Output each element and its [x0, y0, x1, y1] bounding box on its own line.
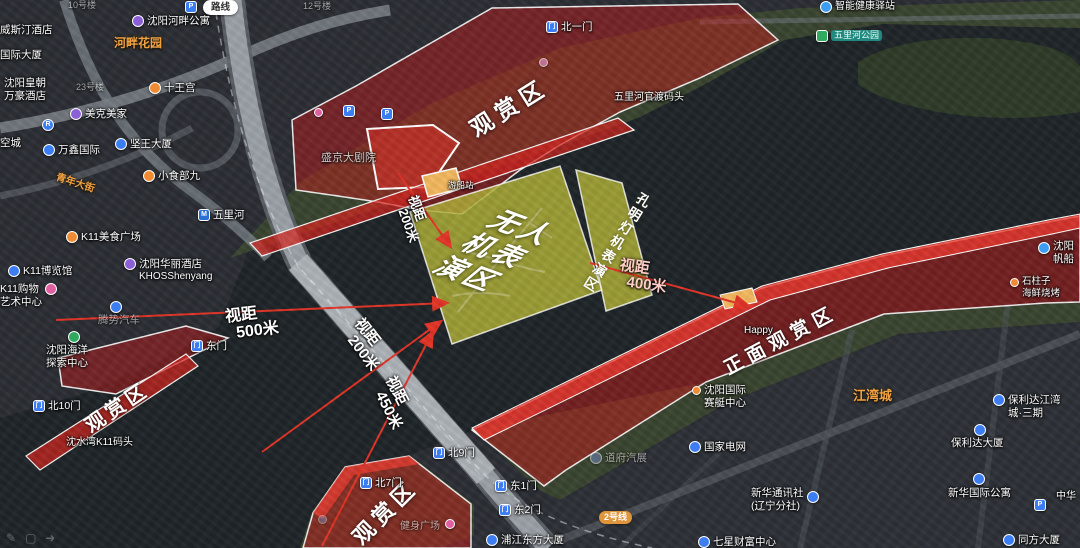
parking-poi[interactable]: P: [185, 1, 197, 13]
poi-north-gate-9[interactable]: 门 北9门: [433, 447, 475, 460]
poi-tengshi-icon[interactable]: [110, 301, 122, 313]
poi-hepan-apartment[interactable]: 沈阳河畔公寓: [132, 15, 210, 28]
park-icon: [816, 30, 828, 42]
poi-dot-icon: [692, 386, 701, 395]
poi-guandu-pier[interactable]: 五里河官渡码头: [614, 92, 684, 104]
aquarium-icon: [68, 331, 80, 343]
poi-dot-icon: [539, 58, 548, 67]
poi-ocean-center[interactable]: 沈阳海洋探索中心: [46, 344, 88, 370]
building-icon: [1003, 534, 1015, 546]
poi-north-gate-1[interactable]: 门 北一门: [546, 21, 593, 34]
gate-icon: 门: [33, 400, 45, 412]
health-icon: [820, 1, 832, 13]
poi-wanxin[interactable]: 万鑫国际: [43, 144, 100, 157]
poi-meikemeijia[interactable]: 美克美家: [70, 108, 127, 121]
poi-zhonghua: 中华: [1056, 491, 1076, 503]
poi-dot: [539, 58, 548, 67]
building-number: 10号楼: [68, 0, 96, 11]
parking-poi[interactable]: P: [381, 108, 393, 120]
poi-xiaoshibu[interactable]: 小食部九: [143, 170, 200, 183]
poi-north-gate-10[interactable]: 门 北10门: [33, 400, 81, 413]
poi-sailing-base[interactable]: 沈阳帆船: [1038, 240, 1074, 266]
poi-baolida-icon[interactable]: [974, 424, 986, 436]
restaurant-dot-icon: [1010, 278, 1019, 287]
building-number: 23号楼: [76, 82, 104, 93]
poi-jianwang-tower[interactable]: 坚王大厦: [115, 138, 172, 151]
poi-baolida-tower[interactable]: 保利达大厦: [951, 437, 1004, 450]
poi-xinhua-news[interactable]: 新华通讯社(辽宁分社): [751, 487, 819, 513]
distance-label-400m: 视距400米: [616, 258, 669, 297]
poi-fitness-square[interactable]: 健身广场: [400, 521, 440, 533]
building-number: 12号楼: [303, 1, 331, 12]
poi-baolida-phase3[interactable]: 保利达江湾城·三期: [993, 394, 1061, 420]
metro-icon: M: [198, 209, 210, 221]
building-icon: [698, 536, 710, 548]
poi-k11-pier[interactable]: 沈水湾K11码头: [66, 437, 133, 449]
poi-east-gate[interactable]: 门 东门: [191, 340, 227, 353]
mall-icon: [45, 283, 57, 295]
poi-dot: [445, 519, 455, 529]
parking-poi[interactable]: P: [1034, 499, 1046, 511]
museum-icon: [8, 265, 20, 277]
parking-poi[interactable]: P: [343, 105, 355, 117]
editor-toolbar[interactable]: ✎ ▢ ➜: [6, 531, 55, 545]
poi-kongcheng[interactable]: 空城: [0, 137, 21, 150]
poi-westin[interactable]: 威斯汀酒店: [0, 24, 53, 37]
metro-line2-badge: 2号线: [599, 511, 632, 524]
poi-k11-expo[interactable]: K11博览馆: [8, 265, 72, 278]
poi-huangchao-hotel[interactable]: 沈阳皇朝万豪酒店: [4, 77, 46, 103]
parking-icon: P: [381, 108, 393, 120]
news-icon: [807, 491, 819, 503]
hotel-icon: [124, 258, 136, 270]
poi-tengshi[interactable]: 腾势汽车: [98, 314, 140, 327]
poi-ocean-icon[interactable]: [68, 331, 80, 343]
gate-icon: 门: [433, 447, 445, 459]
rect-tool-icon[interactable]: ▢: [25, 531, 36, 545]
poi-hepan-garden[interactable]: 河畔花园: [114, 36, 162, 50]
poi-wulihe-park[interactable]: 五里河公园: [816, 30, 882, 42]
poi-seafood-bbq[interactable]: 石柱子海鲜烧烤: [1010, 276, 1060, 300]
gate-icon: 门: [360, 477, 372, 489]
poi-wulihe-metro[interactable]: M 五里河: [198, 209, 245, 222]
poi-xinhua-apt-icon[interactable]: [973, 473, 985, 485]
route-button[interactable]: 路线: [203, 0, 238, 15]
parking-icon: P: [185, 1, 197, 13]
residence-icon: [973, 473, 985, 485]
poi-k11-mall[interactable]: K11购物艺术中心: [0, 283, 57, 309]
car-icon: [110, 301, 122, 313]
poi-dot-icon: [314, 108, 323, 117]
satellite-map[interactable]: 观赏区 观赏区 观赏区 正面观赏区 无人 机表 演区 孔明灯机表演区 视距200…: [0, 0, 1080, 548]
distance-label-500m: 视距500米: [224, 303, 280, 344]
poi-qixing[interactable]: 七星财富中心: [698, 536, 776, 548]
residence-icon: [993, 394, 1005, 406]
poi-tongfang-tower[interactable]: 同方大厦: [1003, 534, 1060, 547]
food-icon: [66, 231, 78, 243]
gate-icon: 门: [499, 504, 511, 516]
gate-icon: 门: [495, 480, 507, 492]
poi-east-gate-1[interactable]: 门 东1门: [495, 480, 537, 493]
gate-icon: 门: [546, 21, 558, 33]
arrow-tool-icon[interactable]: ➜: [45, 531, 55, 545]
shop-icon: [70, 108, 82, 120]
poi-rowing-center[interactable]: 沈阳国际赛艇中心: [692, 384, 746, 410]
poi-dot: [314, 108, 323, 117]
poi-k11-food[interactable]: K11美食广场: [66, 231, 141, 244]
r-icon: R: [42, 119, 54, 131]
gate-icon: 门: [191, 340, 203, 352]
building-icon: [115, 138, 127, 150]
poi-pujiang-tower[interactable]: 浦江东方大厦: [486, 534, 564, 547]
building-icon: [132, 15, 144, 27]
temple-icon: [149, 82, 161, 94]
building-icon: [43, 144, 55, 156]
restaurant-icon: [143, 170, 155, 182]
parking-icon: P: [343, 105, 355, 117]
poi-boat-station[interactable]: 游船站: [448, 180, 474, 190]
poi-dot-icon: [318, 515, 327, 524]
poi-state-grid[interactable]: 国家电网: [689, 441, 746, 454]
office-icon: [689, 441, 701, 453]
parking-icon: P: [1034, 499, 1046, 511]
poi-smart-health[interactable]: 智能健康驿站: [820, 1, 895, 13]
poi-dot-icon: [445, 519, 455, 529]
poi-dot: [318, 515, 327, 524]
building-icon: [486, 534, 498, 546]
poi-daofu[interactable]: 道府汽展: [590, 452, 647, 465]
car-expo-icon: [590, 452, 602, 464]
poi-shengjing-theatre[interactable]: 盛京大剧院: [321, 152, 376, 165]
sailing-icon: [1038, 242, 1050, 254]
poi-shiwanggong[interactable]: 十王宫: [149, 82, 196, 95]
poi-r-marker[interactable]: R: [42, 119, 54, 131]
poi-happy[interactable]: Happy: [744, 325, 773, 337]
poi-east-gate-2[interactable]: 门 东2门: [499, 504, 541, 517]
poi-intl-tower[interactable]: 国际大厦: [0, 49, 42, 62]
poi-jiangwancheng: 江湾城: [853, 388, 892, 404]
building-icon: [974, 424, 986, 436]
pen-tool-icon[interactable]: ✎: [6, 531, 16, 545]
poi-xinhua-apartment[interactable]: 新华国际公寓: [948, 487, 1011, 500]
poi-north-gate-7[interactable]: 门 北7门: [360, 477, 402, 490]
poi-khos-hotel[interactable]: 沈阳华丽酒店KHOSShenyang: [124, 258, 212, 284]
